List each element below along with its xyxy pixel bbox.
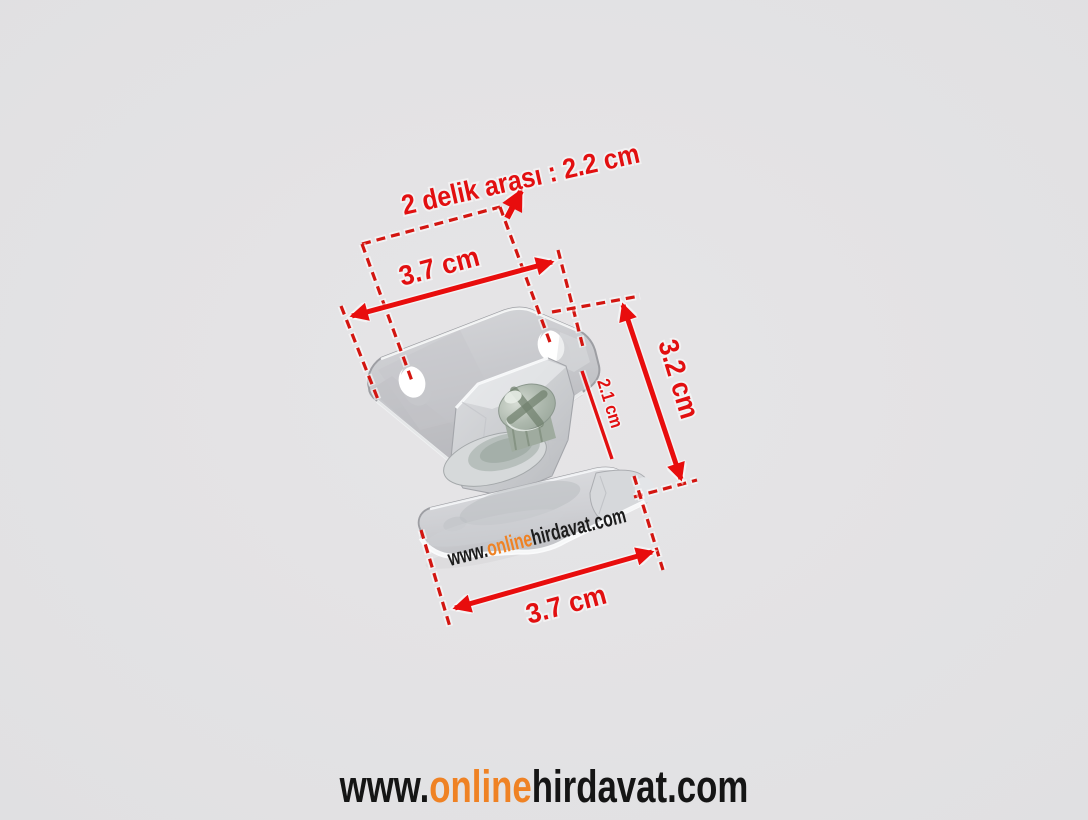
svg-text:www.onlinehirdavat.com: www.onlinehirdavat.com [339,760,749,812]
